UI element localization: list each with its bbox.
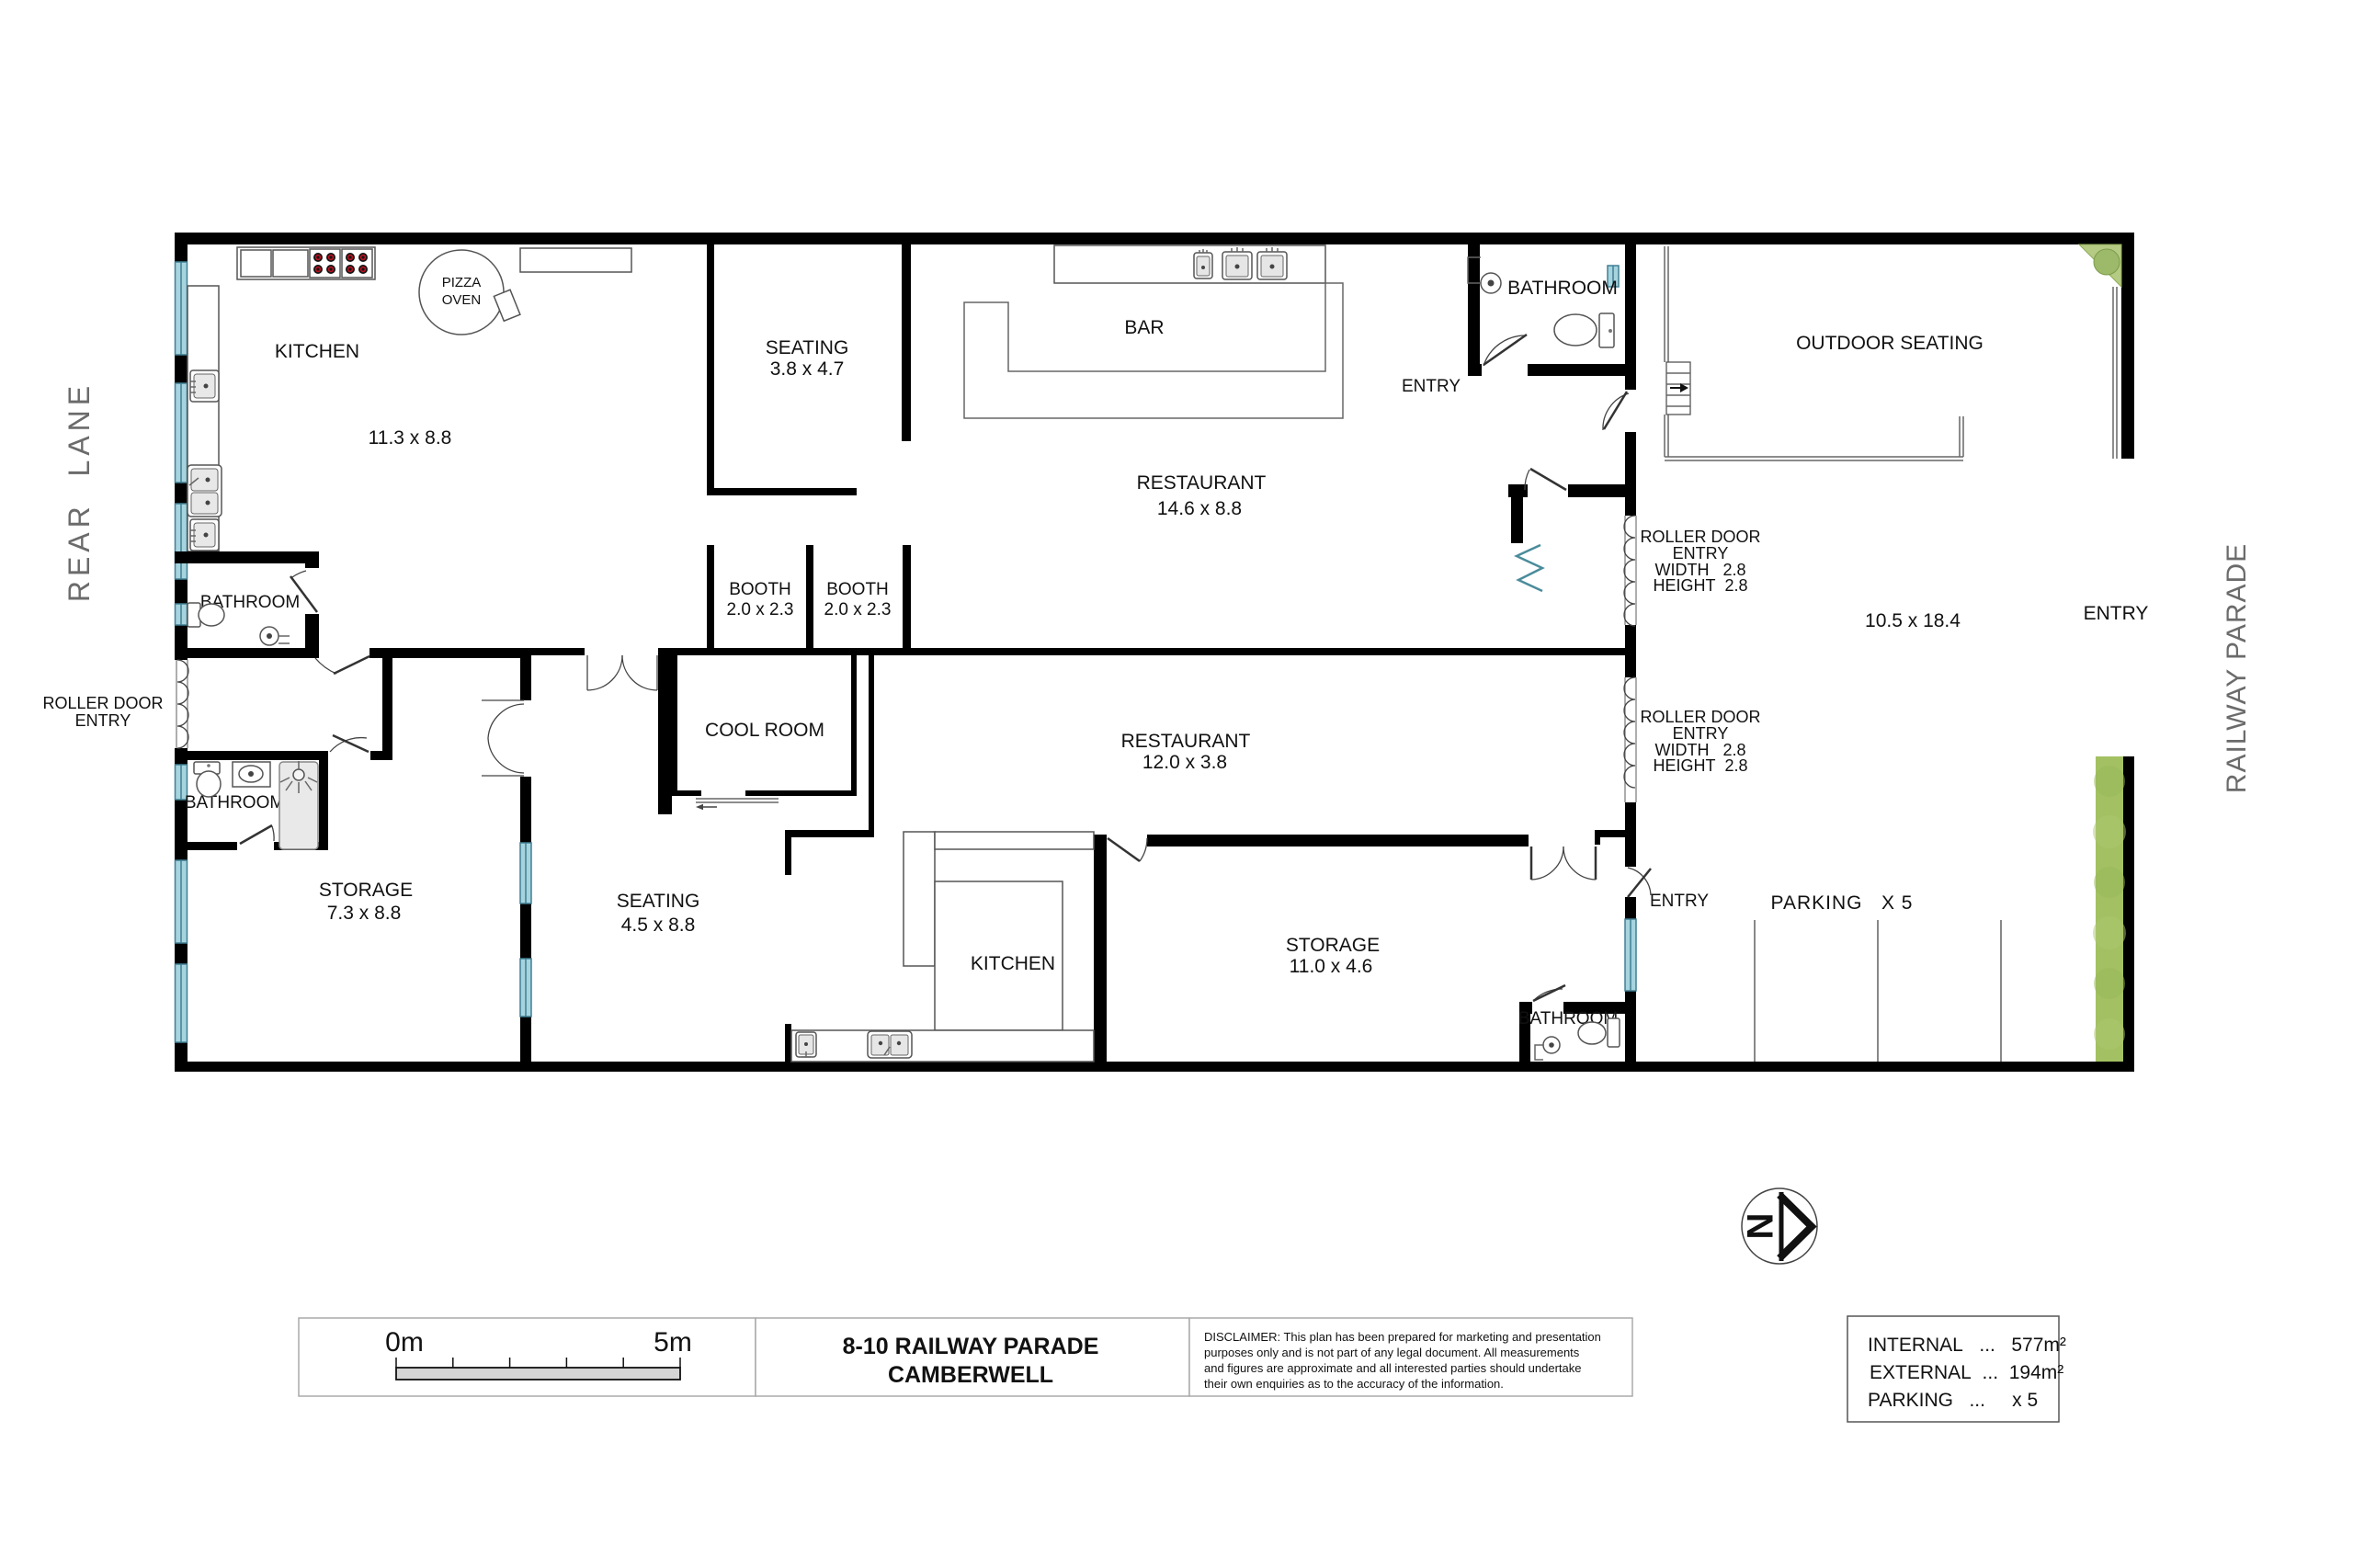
svg-text:10.5 x 18.4: 10.5 x 18.4: [1865, 610, 1961, 631]
svg-text:5m: 5m: [654, 1327, 692, 1358]
svg-text:EXTERNAL ... 194m²: EXTERNAL ... 194m²: [1870, 1362, 2063, 1383]
svg-text:ENTRY: ENTRY: [75, 711, 131, 730]
svg-text:RESTAURANT: RESTAURANT: [1121, 731, 1251, 752]
svg-text:ENTRY: ENTRY: [1402, 377, 1461, 396]
svg-text:HEIGHT 2.8: HEIGHT 2.8: [1653, 576, 1747, 595]
svg-text:COOL ROOM: COOL ROOM: [705, 720, 824, 741]
svg-text:BATHROOM: BATHROOM: [1507, 278, 1618, 299]
svg-text:11.0 x 4.6: 11.0 x 4.6: [1290, 956, 1373, 977]
svg-text:7.3 x 8.8: 7.3 x 8.8: [327, 903, 402, 924]
svg-text:2.0 x 2.3: 2.0 x 2.3: [824, 600, 892, 619]
svg-text:12.0 x 3.8: 12.0 x 3.8: [1142, 752, 1227, 773]
svg-text:ENTRY: ENTRY: [1650, 892, 1709, 911]
svg-text:SEATING: SEATING: [766, 337, 849, 358]
svg-text:HEIGHT 2.8: HEIGHT 2.8: [1653, 756, 1747, 775]
svg-text:BATHROOM: BATHROOM: [185, 793, 284, 812]
svg-text:KITCHEN: KITCHEN: [971, 953, 1055, 974]
svg-text:their own enquiries as to the: their own enquiries as to the accuracy o…: [1204, 1377, 1504, 1391]
svg-text:CAMBERWELL: CAMBERWELL: [888, 1362, 1053, 1388]
svg-text:ENTRY: ENTRY: [2084, 603, 2149, 624]
svg-text:11.3 x 8.8: 11.3 x 8.8: [369, 427, 452, 449]
svg-text:and figures are approximate an: and figures are approximate and all inte…: [1204, 1361, 1581, 1375]
svg-text:DISCLAIMER: This plan has been: DISCLAIMER: This plan has been prepared …: [1204, 1330, 1601, 1344]
svg-text:ROLLER DOOR: ROLLER DOOR: [1640, 708, 1760, 726]
svg-text:ROLLER DOOR: ROLLER DOOR: [1640, 528, 1760, 546]
svg-text:3.8 x 4.7: 3.8 x 4.7: [770, 358, 845, 380]
svg-text:RESTAURANT: RESTAURANT: [1137, 472, 1267, 494]
svg-text:PIZZA: PIZZA: [442, 275, 482, 290]
svg-text:N: N: [1739, 1213, 1779, 1240]
svg-text:BOOTH: BOOTH: [826, 580, 889, 599]
svg-text:STORAGE: STORAGE: [319, 880, 413, 901]
svg-text:OVEN: OVEN: [442, 292, 482, 308]
svg-text:14.6 x 8.8: 14.6 x 8.8: [1157, 498, 1242, 519]
svg-text:ENTRY: ENTRY: [1673, 544, 1729, 562]
svg-text:BAR: BAR: [1124, 317, 1164, 338]
svg-text:RAILWAY PARADE: RAILWAY PARADE: [2222, 543, 2252, 793]
svg-text:REAR LANE: REAR LANE: [63, 381, 96, 602]
svg-text:INTERNAL ... 577m²: INTERNAL ... 577m²: [1868, 1335, 2066, 1356]
svg-text:ENTRY: ENTRY: [1673, 724, 1729, 743]
svg-text:4.5 x 8.8: 4.5 x 8.8: [621, 915, 696, 936]
svg-text:KITCHEN: KITCHEN: [275, 341, 359, 362]
svg-text:PARKING ... x 5: PARKING ... x 5: [1868, 1390, 2038, 1411]
svg-text:2.0 x 2.3: 2.0 x 2.3: [727, 600, 794, 619]
svg-text:SEATING: SEATING: [617, 891, 700, 912]
svg-text:OUTDOOR SEATING: OUTDOOR SEATING: [1796, 333, 1984, 354]
svg-text:0m: 0m: [385, 1327, 424, 1358]
svg-text:STORAGE: STORAGE: [1286, 935, 1380, 956]
svg-text:BOOTH: BOOTH: [729, 580, 791, 599]
svg-text:8-10 RAILWAY PARADE: 8-10 RAILWAY PARADE: [843, 1334, 1099, 1359]
svg-text:PARKING X 5: PARKING X 5: [1771, 892, 1914, 914]
svg-text:ROLLER DOOR: ROLLER DOOR: [42, 694, 163, 712]
svg-text:purposes only and is not part: purposes only and is not part of any leg…: [1204, 1346, 1580, 1359]
